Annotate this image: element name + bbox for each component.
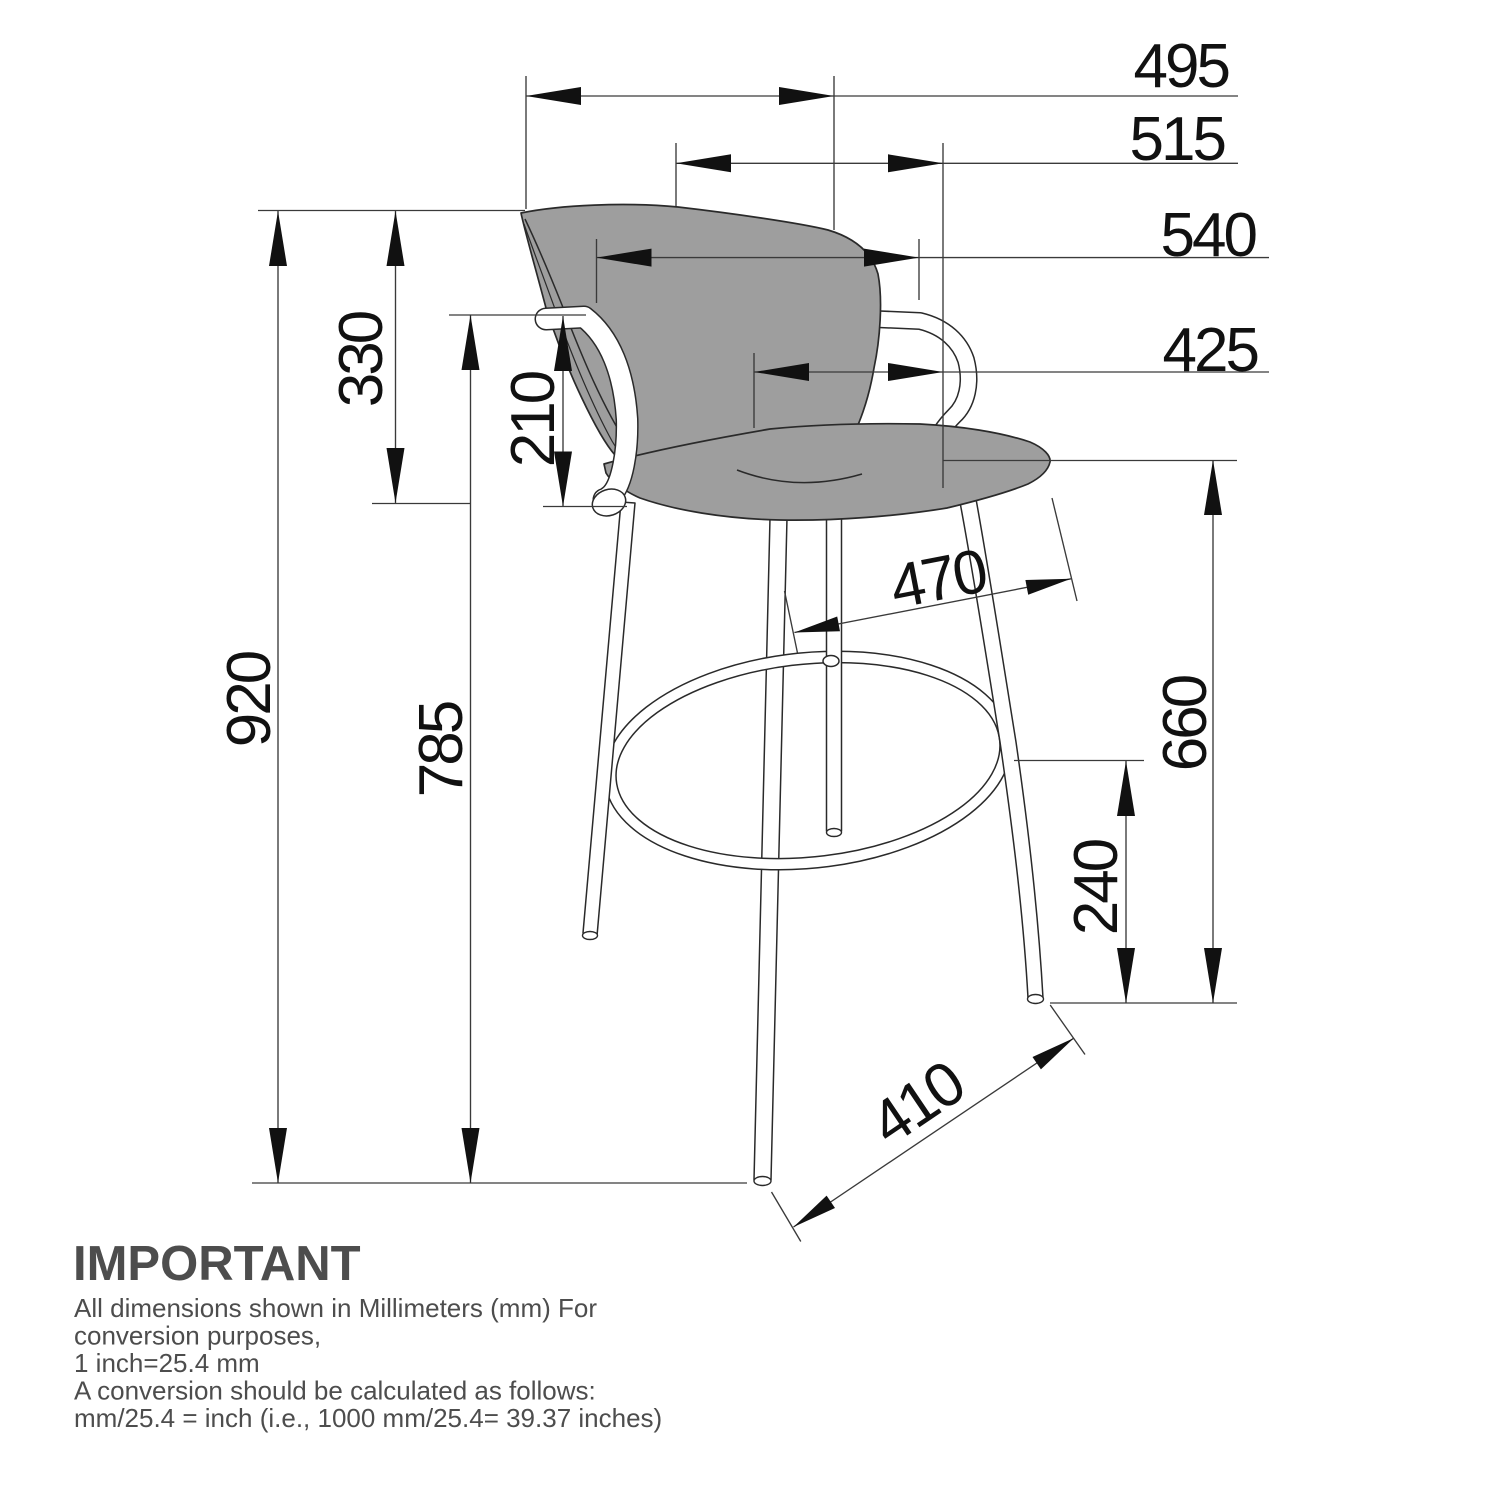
svg-text:conversion purposes,: conversion purposes,: [74, 1321, 321, 1351]
svg-text:330: 330: [327, 311, 396, 407]
svg-text:A conversion should be calcula: A conversion should be calculated as fol…: [74, 1376, 596, 1406]
svg-text:495: 495: [1134, 32, 1229, 101]
svg-text:425: 425: [1163, 316, 1258, 385]
svg-text:IMPORTANT: IMPORTANT: [73, 1237, 361, 1291]
svg-text:mm/25.4 = inch (i.e., 1000 mm/: mm/25.4 = inch (i.e., 1000 mm/25.4= 39.3…: [74, 1403, 662, 1433]
svg-text:210: 210: [499, 371, 568, 467]
svg-text:920: 920: [215, 651, 284, 747]
svg-text:515: 515: [1130, 105, 1225, 174]
svg-text:240: 240: [1062, 839, 1131, 935]
svg-text:540: 540: [1161, 201, 1257, 270]
svg-text:1 inch=25.4 mm: 1 inch=25.4 mm: [74, 1348, 260, 1378]
svg-text:All dimensions shown in Millim: All dimensions shown in Millimeters (mm)…: [74, 1293, 597, 1323]
svg-text:660: 660: [1151, 675, 1220, 771]
svg-text:785: 785: [407, 702, 476, 797]
